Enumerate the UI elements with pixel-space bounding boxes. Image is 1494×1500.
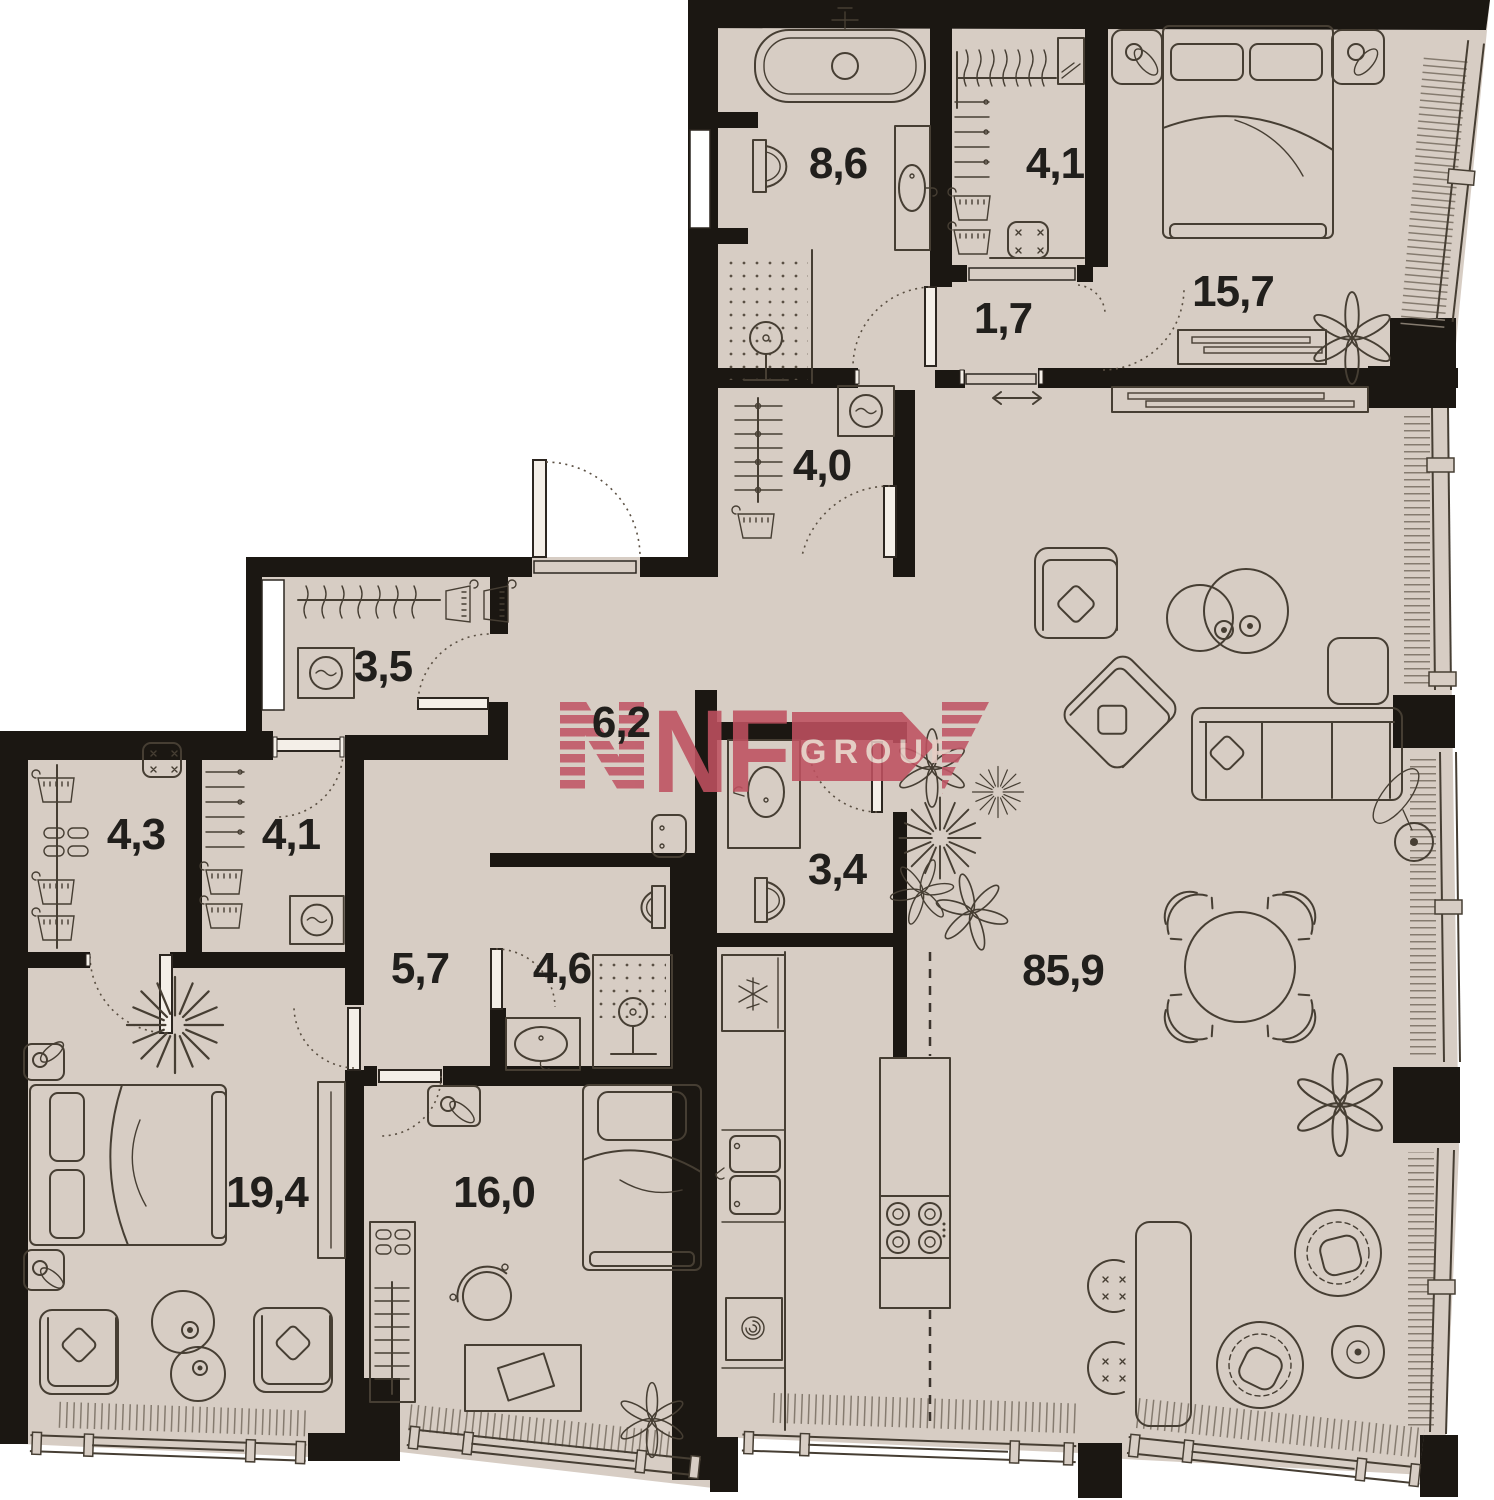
room-area-label: 6,2 xyxy=(592,698,650,747)
watermark-suffix: GROUP xyxy=(800,733,960,771)
room-area-label: 4,0 xyxy=(793,441,851,490)
room-area-label: 1,7 xyxy=(974,294,1032,343)
room-area-label: 5,7 xyxy=(391,944,449,993)
floorplan-page: NF GROUP 8,6 4,1 15,7 1,7 4,0 3,5 6,2 4,… xyxy=(0,0,1494,1500)
shower-icon xyxy=(724,250,812,383)
wall-duct xyxy=(690,130,710,228)
room-area-label: 4,1 xyxy=(262,810,321,859)
wall-duct xyxy=(262,580,284,710)
room-area-label: 3,5 xyxy=(354,642,413,691)
room-area-label: 4,3 xyxy=(107,810,165,859)
room-area-label: 19,4 xyxy=(226,1168,309,1217)
room-area-label: 3,4 xyxy=(808,845,868,894)
entrance-door-leaf xyxy=(533,460,546,557)
room-area-label: 4,6 xyxy=(533,944,591,993)
watermark-brand: NF xyxy=(652,686,788,818)
floorplan-drawing: NF GROUP 8,6 4,1 15,7 1,7 4,0 3,5 6,2 4,… xyxy=(0,0,1494,1500)
room-area-label: 4,1 xyxy=(1026,139,1085,188)
room-area-label: 8,6 xyxy=(809,139,867,188)
room-area-label: 15,7 xyxy=(1192,267,1274,316)
room-area-label: 16,0 xyxy=(453,1168,535,1217)
room-area-label: 85,9 xyxy=(1022,946,1104,995)
